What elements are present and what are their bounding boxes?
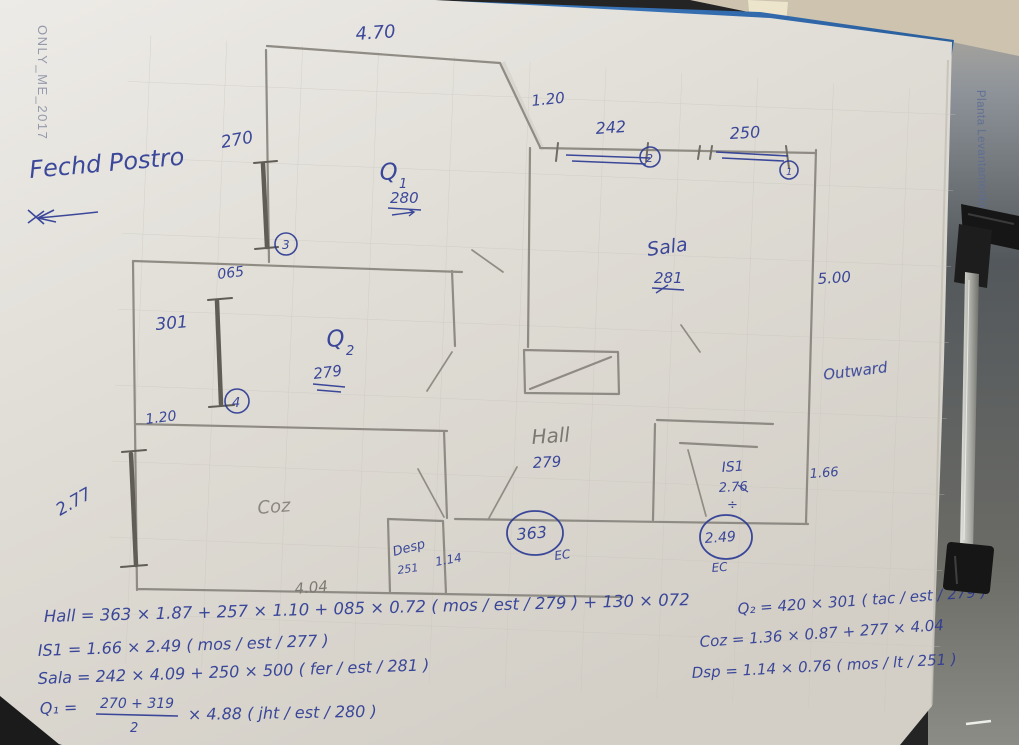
watermark-text: ONLY_ME_2017	[35, 25, 50, 140]
dim-top-width: 4.70	[355, 21, 396, 45]
dim-bottom-width: 4.04	[294, 577, 329, 598]
hall-entry-value: 363	[516, 522, 548, 544]
formula-q1-lhs: Q₁ =	[39, 698, 77, 718]
dim-sala-side: 5.00	[817, 268, 852, 288]
photo-of-floorplan-sketch: Coz Hall 4.04 ONLY_ME_2017 Planta Levant…	[0, 0, 1019, 745]
dim-top-offset: 1.20	[531, 89, 566, 110]
room-label-hall: Hall	[531, 422, 571, 449]
side-label-text: Planta Levantamento	[974, 90, 988, 208]
dim-window2: 242	[595, 117, 627, 138]
clip-tip	[947, 546, 990, 590]
is1-entry-ec: EC	[711, 560, 729, 575]
scene: Coz Hall 4.04 ONLY_ME_2017 Planta Levant…	[0, 0, 1019, 745]
formula-q1-rest: × 4.88 ( jht / est / 280 )	[188, 702, 377, 724]
ref-1: 1	[786, 167, 792, 178]
dim-window1: 250	[729, 122, 760, 143]
dim-left-window: 301	[155, 312, 189, 335]
is1-entry-value: 2.49	[704, 529, 736, 547]
room-q1-ceiling: 280	[390, 189, 419, 207]
room-label-coz: Coz	[257, 495, 292, 519]
room-sala-ceiling: 281	[654, 269, 683, 287]
formula-q1-numerator: 270 + 319	[100, 696, 174, 712]
formula-q1-denominator: 2	[130, 721, 138, 736]
ref-3: 3	[282, 238, 290, 252]
room-hall-ceiling: 279	[532, 453, 562, 472]
is1-divide-mark: ÷	[727, 498, 738, 513]
room-q1: Q	[379, 159, 398, 186]
room-q2-ceiling: 279	[312, 362, 343, 383]
ref-4: 4	[232, 396, 240, 411]
dim-wall-stub: 065	[217, 264, 246, 283]
hall-entry-ec: EC	[553, 547, 571, 563]
room-is1: IS1	[721, 458, 744, 475]
room-q2: Q	[326, 326, 346, 353]
dim-is1-width: 1.66	[809, 465, 839, 482]
room-is1-ceiling: 2.76	[718, 479, 748, 495]
room-q2-index: 2	[346, 344, 354, 359]
ref-2: 2	[646, 152, 653, 165]
